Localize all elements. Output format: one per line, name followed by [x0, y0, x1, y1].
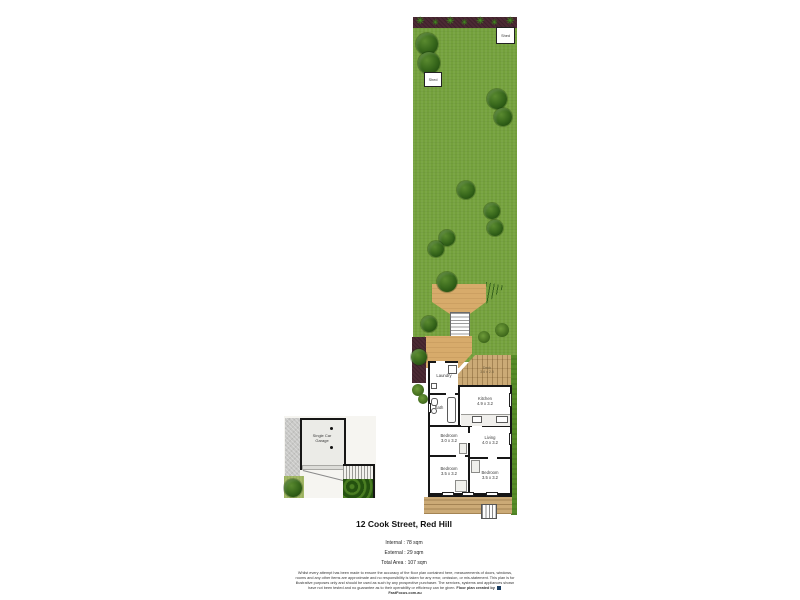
bedroom1-label: Bedroom3.0 x 3.2 [430, 433, 468, 443]
external-area: External : 29 sqm [294, 548, 514, 558]
shed: Shed [424, 72, 442, 87]
front-verandah [424, 497, 512, 514]
laundry-label: Laundry [430, 373, 458, 378]
tree-icon [418, 52, 440, 74]
hedge [343, 479, 373, 498]
bush-icon [495, 323, 509, 337]
tree-icon [494, 108, 512, 126]
window [462, 492, 474, 496]
door-opening [456, 455, 465, 457]
bedroom3-label: Bedroom3.5 x 3.2 [470, 470, 510, 480]
credit-brand: FastFocus.com.au [388, 591, 421, 595]
door-opening [488, 457, 497, 459]
door-opening [446, 393, 455, 395]
tree-icon [487, 220, 503, 236]
sink-icon [496, 416, 508, 423]
garage [300, 418, 346, 470]
plant-icon: ✳ [506, 17, 514, 27]
garage-door [302, 465, 344, 470]
laundry-tub-icon [431, 383, 437, 389]
shed-label: Shed [429, 78, 438, 82]
boundary-wall [373, 464, 375, 498]
window [442, 492, 454, 496]
wardrobe [459, 443, 467, 454]
page-title: 12 Cook Street, Red Hill [294, 519, 514, 529]
deck-label: Deck3.6 x 2.5 [462, 366, 512, 375]
post-icon [330, 427, 333, 430]
tree-icon [411, 349, 427, 365]
kitchen-label: Kitchen4.9 x 3.2 [460, 396, 510, 406]
plant-icon: ✳ [446, 17, 454, 27]
tree-icon [457, 181, 475, 199]
bathtub-icon [447, 397, 456, 423]
garage-label: Single Car Garage [308, 433, 336, 443]
living-label: Living4.0 x 3.2 [470, 435, 510, 445]
shed-label: Shed [501, 34, 510, 38]
credit-prefix: Floor plan created by [456, 586, 494, 590]
internal-area: Internal : 78 sqm [294, 538, 514, 548]
bath-label: Bath [428, 405, 450, 410]
wardrobe [455, 480, 467, 492]
disclaimer: Whilst every attempt has been made to en… [293, 571, 517, 596]
plant-icon: ✳ [416, 17, 424, 27]
area-summary: Internal : 78 sqm External : 29 sqm Tota… [294, 538, 514, 568]
tree-icon [437, 272, 457, 292]
total-area: Total Area : 107 sqm [294, 558, 514, 568]
window [486, 492, 498, 496]
driveway [285, 418, 300, 477]
tree-icon [484, 203, 500, 219]
door-opening [436, 361, 445, 364]
plant-icon: ✳ [476, 17, 484, 27]
door-swing-line [303, 470, 346, 482]
fastfocus-logo-icon [497, 586, 501, 590]
shed: Shed [496, 27, 515, 44]
bush-icon [478, 331, 490, 343]
tree-icon [428, 241, 444, 257]
stove-icon [472, 416, 482, 423]
bush-icon [418, 394, 428, 404]
tree-icon [284, 479, 302, 497]
plant-icon: ✳ [432, 18, 439, 28]
entry-stairs [343, 464, 373, 479]
deck-stairs [450, 312, 470, 337]
plant-icon: ✳ [461, 18, 468, 28]
floor-plan-page: ✳ ✳ ✳ ✳ ✳ ✳ ✳ Deck3.6 x 2.5 [0, 0, 800, 600]
bedroom2-label: Bedroom3.5 x 3.2 [430, 466, 468, 476]
post-icon [330, 446, 333, 449]
front-steps [481, 504, 497, 519]
tree-icon [487, 89, 507, 109]
tree-icon [421, 316, 437, 332]
